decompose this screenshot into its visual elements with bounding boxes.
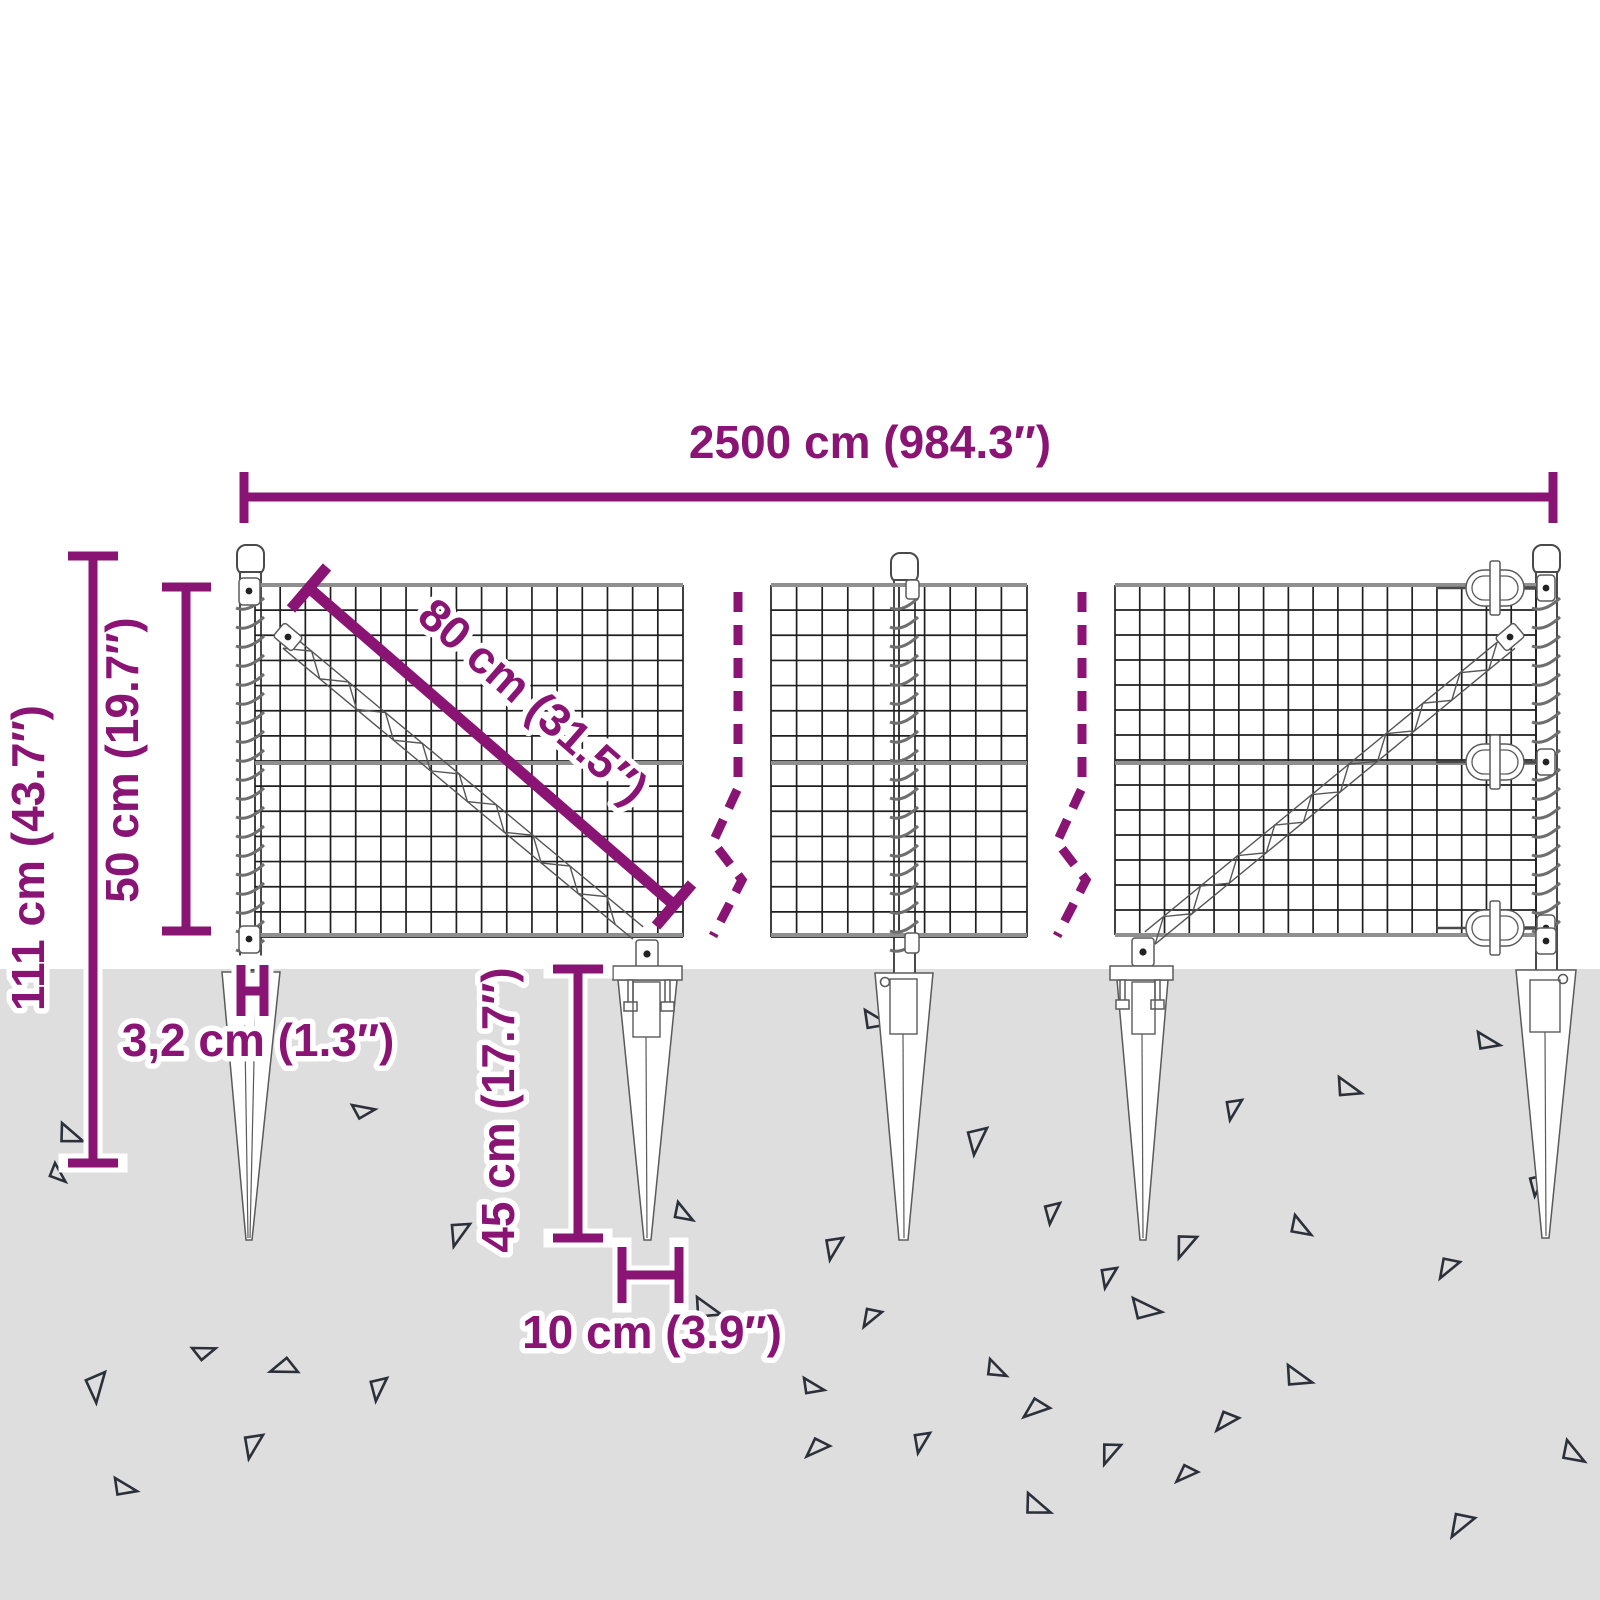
total-width-label: 2500 cm (984.3″) [689, 416, 1051, 468]
post-width-label: 3,2 cm (1.3″) [122, 1014, 395, 1066]
total-height-label: 111 cm (43.7″) [2, 705, 54, 1011]
diagram-canvas: 2500 cm (984.3″) 111 cm (43.7″) 50 cm (1… [0, 0, 1600, 1600]
left-post-cap [237, 545, 264, 575]
right-post-cap [1533, 545, 1560, 575]
middle-post-bottom-clip [905, 933, 919, 953]
middle-post-clip [906, 580, 919, 599]
middle-post-cap [891, 553, 918, 583]
fence-dimension-diagram: 2500 cm (984.3″) 111 cm (43.7″) 50 cm (1… [0, 0, 1600, 1600]
spike-length-label: 45 cm (17.7″) [472, 967, 524, 1252]
spike-width-label: 10 cm (3.9″) [522, 1306, 782, 1358]
mesh-height-label: 50 cm (19.7″) [96, 617, 148, 902]
